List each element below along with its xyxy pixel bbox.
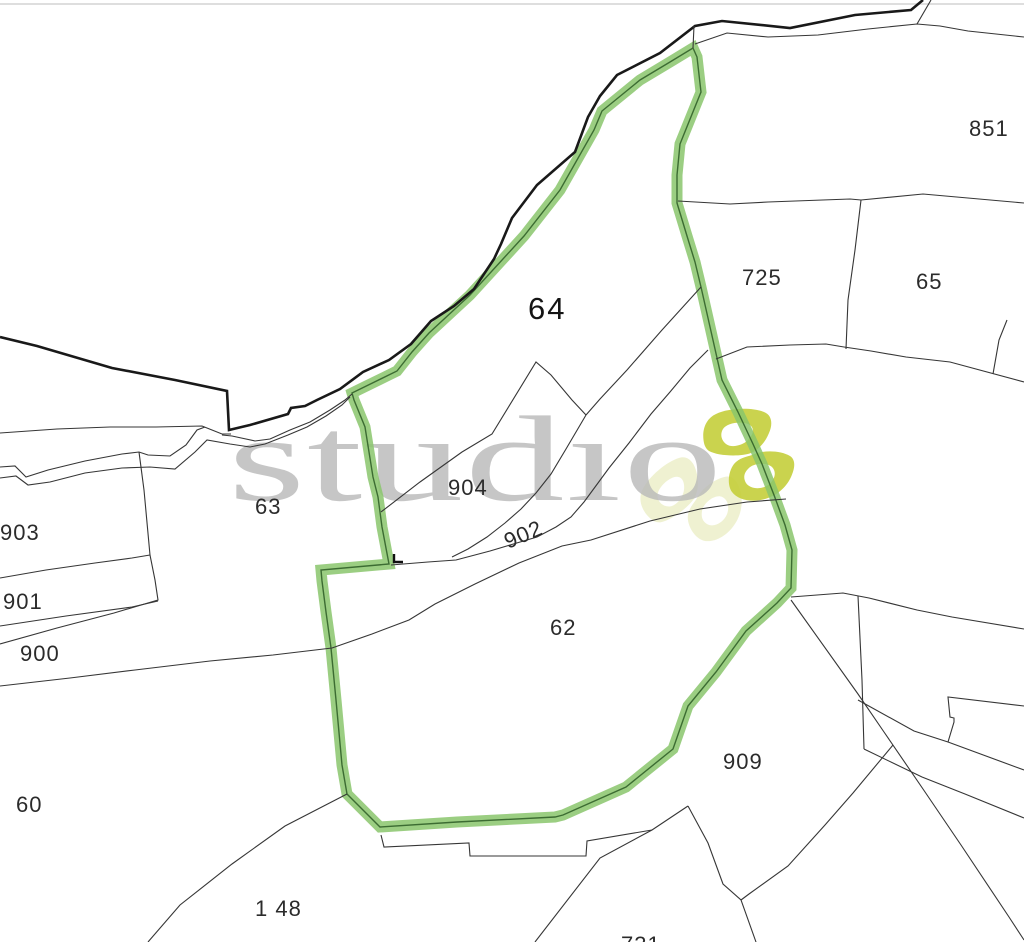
svg-text:62: 62 — [550, 615, 576, 640]
svg-text:900: 900 — [20, 641, 60, 666]
svg-text:731: 731 — [621, 932, 661, 942]
svg-text:903: 903 — [0, 520, 40, 545]
svg-text:851: 851 — [969, 116, 1009, 141]
svg-text:725: 725 — [742, 265, 782, 290]
svg-text:904: 904 — [448, 475, 488, 500]
svg-text:studıo: studıo — [228, 391, 724, 526]
svg-text:1 48: 1 48 — [255, 896, 302, 921]
svg-text:63: 63 — [255, 494, 281, 519]
svg-text:64: 64 — [528, 291, 566, 326]
svg-text:901: 901 — [3, 589, 43, 614]
svg-text:60: 60 — [16, 792, 42, 817]
svg-text:909: 909 — [723, 749, 763, 774]
svg-text:65: 65 — [916, 269, 942, 294]
